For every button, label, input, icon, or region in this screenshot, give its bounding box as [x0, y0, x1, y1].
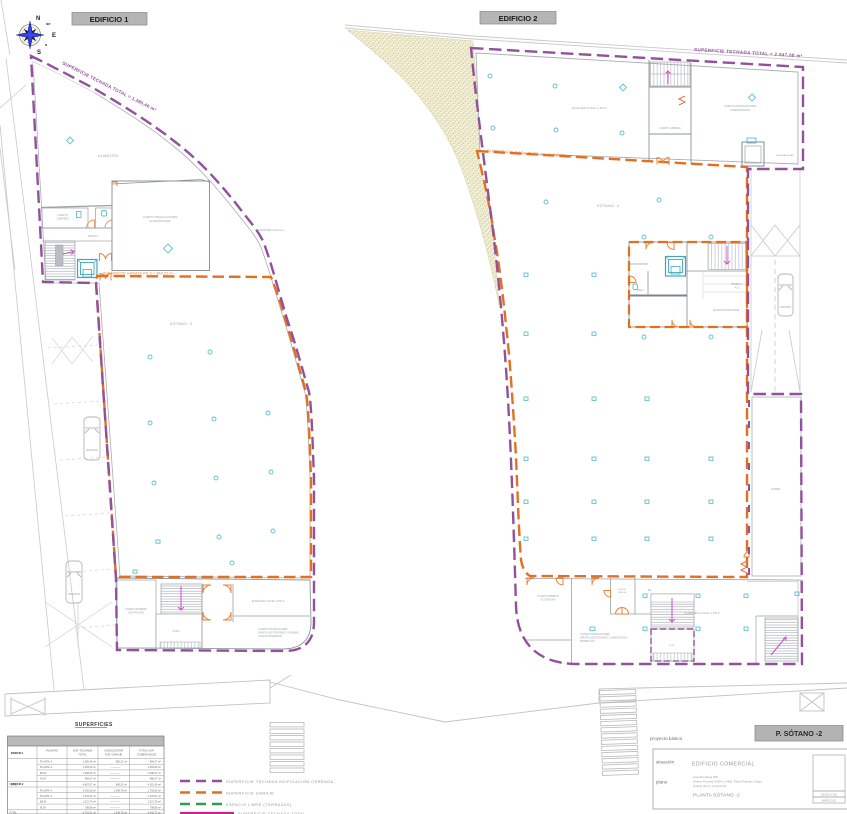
svg-text:PLANTA SÓTANO -2: PLANTA SÓTANO -2: [693, 792, 740, 798]
svg-text:1.248,78 m²: 1.248,78 m²: [114, 789, 128, 792]
svg-text:RAMPA: RAMPA: [771, 487, 780, 491]
svg-text:COMERCIALES: COMERCIALES: [137, 753, 157, 757]
svg-text:4.687,07 m²: 4.687,07 m²: [83, 784, 97, 787]
svg-text:1.254,09 m²: 1.254,09 m²: [83, 766, 97, 769]
svg-text:LIMPIEZA: LIMPIEZA: [57, 216, 69, 220]
svg-text:968,07 m²: 968,07 m²: [85, 778, 96, 781]
svg-text:BAJA: BAJA: [40, 801, 47, 804]
svg-text:2.178,01 m²: 2.178,01 m²: [148, 795, 162, 798]
svg-text:TOTAL: TOTAL: [78, 753, 87, 757]
svg-text:2.178,01 m²: 2.178,01 m²: [83, 795, 97, 798]
svg-text:SUPERFICIES: SUPERFICIES: [75, 722, 113, 728]
svg-text:————: ————: [110, 795, 121, 798]
svg-text:SUPERFICIE GARAJE: SUPERFICIE GARAJE: [226, 792, 274, 796]
svg-text:plano: plano: [656, 780, 668, 785]
svg-text:CUARTO INSTALACIONES: CUARTO INSTALACIONES: [724, 104, 756, 108]
svg-text:FOSO: FOSO: [172, 630, 179, 633]
svg-text:TOTAL SUP.: TOTAL SUP.: [139, 749, 154, 753]
svg-text:FOSO: FOSO: [669, 645, 675, 647]
svg-text:A DESCONTAR: A DESCONTAR: [104, 749, 123, 753]
svg-text:ALMACÉN LOCAL 1 PS-2: ALMACÉN LOCAL 1 PS-2: [571, 105, 606, 110]
svg-text:————: ————: [110, 772, 121, 775]
svg-text:ACS PISCINA: ACS PISCINA: [540, 598, 556, 601]
svg-text:ACS PISCINA: ACS PISCINA: [128, 611, 144, 614]
svg-text:Ámbito Parcela U4E4 y U4E5, Pl: Ámbito Parcela U4E4 y U4E5, Playa Paraís…: [693, 779, 762, 783]
svg-text:S: S: [37, 50, 41, 56]
svg-text:EDIFICIO 1: EDIFICIO 1: [90, 15, 129, 24]
svg-text:1.221,76 m²: 1.221,76 m²: [148, 801, 162, 804]
svg-text:se: se: [46, 21, 51, 26]
svg-text:PLANTAS: PLANTAS: [46, 749, 58, 753]
svg-text:ALTA: ALTA: [40, 778, 46, 781]
svg-text:SÓTANO -2: SÓTANO -2: [597, 203, 620, 208]
svg-text:860,22 m²: 860,22 m²: [116, 761, 127, 764]
svg-text:EDIFICIO 2: EDIFICIO 2: [499, 14, 538, 23]
svg-text:CLIMATIZACION: CLIMATIZACION: [730, 108, 750, 112]
svg-text:BOMBAS SCI: BOMBAS SCI: [580, 640, 595, 643]
svg-text:860,22 m²: 860,22 m²: [116, 784, 127, 787]
svg-text:1.380,46 m²: 1.380,46 m²: [83, 761, 97, 764]
svg-text:ESPACIO LIBRE (TERRAZAS): ESPACIO LIBRE (TERRAZAS): [226, 803, 292, 807]
svg-text:1.793,80 m²: 1.793,80 m²: [148, 789, 162, 792]
svg-text:SALA MAQUINAS: SALA MAQUINAS: [776, 154, 794, 157]
svg-text:PLANTA -1: PLANTA -1: [40, 795, 53, 798]
svg-text:ALTA: ALTA: [40, 806, 46, 809]
svg-text:BAJA: BAJA: [40, 772, 47, 775]
svg-text:1.221,76 m²: 1.221,76 m²: [83, 801, 97, 804]
svg-text:-984,17 m²: -984,17 m²: [149, 761, 161, 764]
svg-text:PLANTA -1: PLANTA -1: [40, 766, 53, 769]
svg-text:————: ————: [110, 801, 121, 804]
svg-text:————: ————: [110, 778, 121, 781]
svg-text:SUP. TECHADA: SUP. TECHADA: [73, 749, 93, 753]
svg-text:N: N: [36, 16, 40, 22]
svg-text:P. SÓTANO -2: P. SÓTANO -2: [776, 729, 822, 738]
svg-text:SUPERFICIE TECHADA EDIFICACI: SUPERFICIE TECHADA EDIFICACIÓN CERRADA: [226, 779, 334, 784]
svg-text:968,07 m²: 968,07 m²: [150, 778, 161, 781]
svg-text:BOMBAS y: BOMBAS y: [731, 283, 743, 286]
svg-text:————: ————: [110, 806, 121, 809]
svg-text:E: E: [52, 33, 56, 39]
svg-text:PREVIO: PREVIO: [618, 592, 627, 594]
svg-text:ALMACÉN LOCAL 2: ALMACÉN LOCAL 2: [258, 227, 284, 232]
svg-text:1.098,01 m²: 1.098,01 m²: [83, 772, 97, 775]
svg-text:CONTRA INCENDIOS: CONTRA INCENDIOS: [258, 635, 282, 638]
svg-text:EDIFICIO COMERCIAL: EDIFICIO COMERCIAL: [692, 762, 755, 768]
svg-text:ACS: ACS: [735, 286, 740, 289]
svg-text:EDIFICIO 1: EDIFICIO 1: [11, 752, 24, 755]
svg-text:CUARTO EXTRACCION: CUARTO EXTRACCION: [713, 309, 740, 312]
svg-text:ALMACÉN LOCAL 2 PS-2: ALMACÉN LOCAL 2 PS-2: [252, 598, 285, 603]
svg-text:1.254,09 m²: 1.254,09 m²: [148, 766, 162, 769]
svg-text:PASILLO: PASILLO: [88, 234, 99, 238]
svg-text:PLANTA -2: PLANTA -2: [40, 789, 53, 792]
svg-text:CUARTO: CUARTO: [57, 213, 68, 217]
svg-text:CLIMATIZACION: CLIMATIZACION: [149, 219, 170, 223]
svg-text:proyecto básico: proyecto básico: [650, 736, 683, 741]
svg-text:PLANTA -2: PLANTA -2: [40, 761, 53, 764]
svg-text:SUP. GARAJE: SUP. GARAJE: [105, 753, 123, 757]
svg-text:SUPERFICIE GARAJE PS-2 = 860,2: SUPERFICIE GARAJE PS-2 = 860,22 m²: [103, 272, 175, 276]
svg-text:798,86 m²: 798,86 m²: [150, 806, 161, 809]
svg-text:2.042,08 m²: 2.042,08 m²: [83, 789, 97, 792]
svg-text:ESCALA 1/150: ESCALA 1/150: [821, 794, 838, 797]
svg-text:Ámbito SU-4, zona U4-R: Ámbito SU-4, zona U4-R: [693, 784, 727, 788]
svg-text:TOTAL: TOTAL: [9, 784, 17, 787]
svg-text:SÓTANO -2: SÓTANO -2: [170, 321, 193, 326]
svg-text:798,86 m²: 798,86 m²: [85, 806, 96, 809]
svg-text:CUARTO LIMPIEZA: CUARTO LIMPIEZA: [659, 127, 681, 130]
svg-text:1.098,01 m²: 1.098,01 m²: [148, 772, 162, 775]
svg-text:————: ————: [110, 766, 121, 769]
svg-text:4.301,34 m²: 4.301,34 m²: [148, 784, 162, 787]
svg-text:Avenida Adeje 300: Avenida Adeje 300: [693, 775, 718, 779]
svg-text:MARZO 2021: MARZO 2021: [822, 800, 837, 803]
svg-text:ASEO: ASEO: [637, 289, 644, 292]
svg-text:ALMACÉN: ALMACÉN: [98, 153, 118, 158]
svg-text:VESTIB.: VESTIB.: [618, 589, 627, 591]
svg-text:situación: situación: [656, 760, 675, 765]
